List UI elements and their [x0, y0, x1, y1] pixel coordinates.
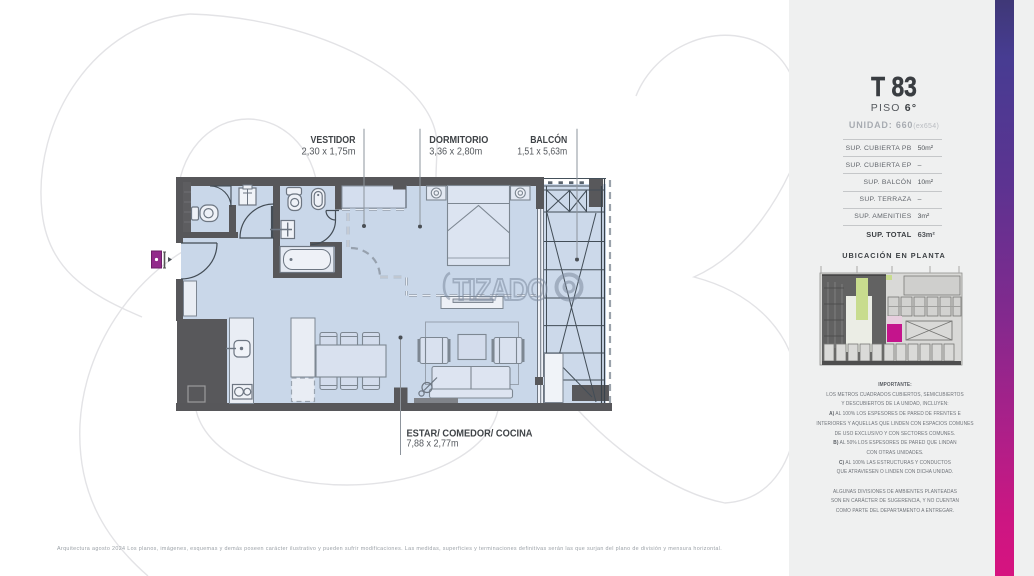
svg-text:DORMITORIO: DORMITORIO	[429, 135, 488, 146]
svg-text:TIZADO: TIZADO	[453, 273, 547, 307]
svg-text:2,30 x 1,75m: 2,30 x 1,75m	[302, 146, 356, 157]
svg-text:VESTIDOR: VESTIDOR	[311, 135, 357, 146]
svg-text:3,36 x 2,80m: 3,36 x 2,80m	[429, 146, 482, 157]
svg-text:BALCÓN: BALCÓN	[530, 133, 567, 146]
svg-text:7,88 x 2,77m: 7,88 x 2,77m	[407, 439, 459, 450]
svg-text:1,51 x 5,63m: 1,51 x 5,63m	[517, 146, 567, 157]
